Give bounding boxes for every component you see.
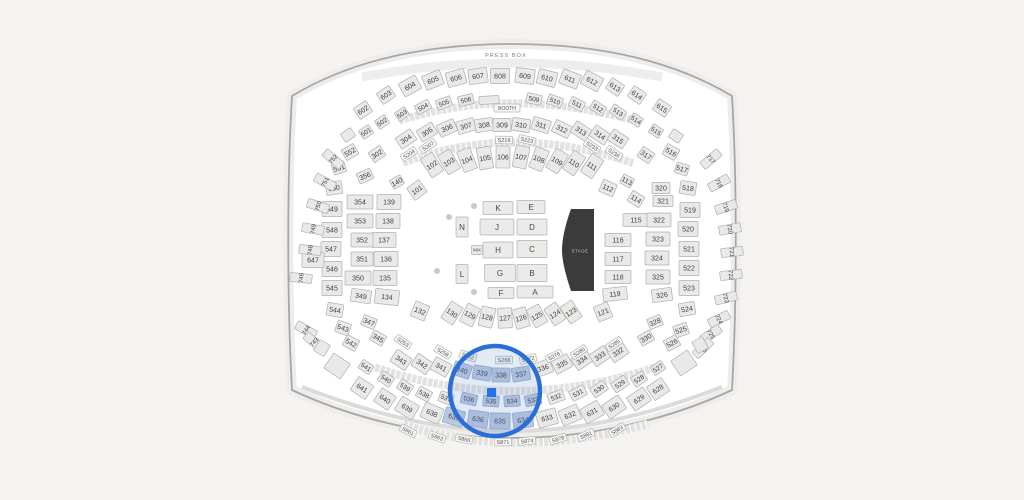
section-label: 351 <box>356 256 368 263</box>
section-label: 106 <box>497 154 509 161</box>
section-label: 522 <box>683 265 695 272</box>
section-label: 119 <box>609 291 621 299</box>
section-label: C <box>529 245 535 254</box>
section-label: 137 <box>378 237 390 244</box>
section-519[interactable]: 519 <box>680 203 700 218</box>
section-127[interactable]: 127 <box>498 308 513 329</box>
section-label: 519 <box>684 207 696 214</box>
section-label: 520 <box>682 226 694 233</box>
section-325[interactable]: 325 <box>646 270 670 284</box>
section-322[interactable]: 322 <box>647 213 671 227</box>
section-323[interactable]: 323 <box>646 232 670 246</box>
section-J[interactable]: J <box>480 219 514 235</box>
section-320[interactable]: 320 <box>652 183 670 194</box>
section-label: 350 <box>352 275 364 282</box>
section-354[interactable]: 354 <box>347 195 373 209</box>
section-label: 118 <box>612 274 623 281</box>
section-label: 325 <box>652 274 664 281</box>
section-label: S219 <box>498 138 511 144</box>
section-544[interactable]: 544 <box>326 302 344 318</box>
section-label: L <box>460 270 465 279</box>
section-label: K <box>495 204 501 213</box>
speaker-icon <box>434 268 440 274</box>
section-MIX[interactable]: MIX <box>472 246 483 255</box>
section-350[interactable]: 350 <box>345 271 371 285</box>
section-label: 722 <box>726 270 733 281</box>
section-label: 139 <box>383 199 395 206</box>
section-label: 748 <box>308 244 315 255</box>
section-label: 322 <box>653 217 665 224</box>
stadium-seat-map: PRESS BOX6026036046056066076086096106116… <box>0 0 1024 500</box>
section-label: 647 <box>307 257 319 264</box>
stage-label: STAGE <box>572 249 589 254</box>
section-label: 545 <box>326 285 338 292</box>
section-A[interactable]: A <box>517 286 553 298</box>
section-label: J <box>495 223 499 232</box>
section-324[interactable]: 324 <box>645 251 669 265</box>
section-label: 323 <box>652 236 664 243</box>
filler-section <box>479 95 499 104</box>
section-label: 353 <box>354 218 366 225</box>
section-D[interactable]: D <box>517 219 547 235</box>
section-label: 320 <box>655 185 667 192</box>
section-119[interactable]: 119 <box>602 286 627 301</box>
section-115[interactable]: 115 <box>623 214 649 227</box>
section-309[interactable]: 309 <box>493 119 511 132</box>
section-label: 117 <box>612 256 623 263</box>
section-label: 352 <box>356 237 368 244</box>
section-353[interactable]: 353 <box>347 214 373 228</box>
section-label: H <box>495 246 501 255</box>
section-S871[interactable]: S871 <box>494 438 511 446</box>
section-520[interactable]: 520 <box>678 222 698 237</box>
section-L[interactable]: L <box>456 265 468 284</box>
section-321[interactable]: 321 <box>653 196 673 207</box>
section-139[interactable]: 139 <box>377 195 401 210</box>
section-349[interactable]: 349 <box>350 288 372 304</box>
section-522[interactable]: 522 <box>679 261 699 276</box>
section-label: 523 <box>683 285 695 292</box>
section-326[interactable]: 326 <box>651 287 673 303</box>
section-booth[interactable]: BOOTH <box>494 104 520 112</box>
section-521[interactable]: 521 <box>679 242 699 257</box>
section-label: N <box>459 223 465 232</box>
section-608[interactable]: 608 <box>490 68 509 83</box>
section-308[interactable]: 308 <box>474 117 494 132</box>
section-116[interactable]: 116 <box>605 234 631 247</box>
section-label: 521 <box>683 246 695 253</box>
speaker-icon <box>446 214 452 220</box>
section-136[interactable]: 136 <box>374 252 398 267</box>
section-548[interactable]: 548 <box>322 223 342 238</box>
seat-map-page: PRESS BOX6026036046056066076086096106116… <box>0 0 1024 500</box>
press-box-label: PRESS BOX <box>485 53 527 59</box>
section-label: 127 <box>499 315 511 323</box>
section-label: D <box>529 223 535 232</box>
section-label: 548 <box>326 227 338 234</box>
section-label: 546 <box>326 266 338 273</box>
section-C[interactable]: C <box>517 241 547 258</box>
section-label: 136 <box>380 256 392 263</box>
section-607[interactable]: 607 <box>468 67 489 84</box>
speaker-icon <box>471 203 477 209</box>
section-138[interactable]: 138 <box>376 214 400 229</box>
section-117[interactable]: 117 <box>605 253 631 266</box>
section-label: 324 <box>651 255 663 262</box>
section-label: 608 <box>494 73 506 80</box>
section-shape <box>479 95 499 104</box>
section-label: E <box>528 203 533 212</box>
section-106[interactable]: 106 <box>496 146 510 168</box>
section-310[interactable]: 310 <box>511 117 531 133</box>
section-524[interactable]: 524 <box>678 301 696 317</box>
section-545[interactable]: 545 <box>322 281 342 296</box>
selected-seat-marker <box>487 388 496 397</box>
section-134[interactable]: 134 <box>374 288 399 305</box>
section-N[interactable]: N <box>456 217 468 237</box>
section-H[interactable]: H <box>483 242 513 258</box>
section-label: 135 <box>379 275 391 282</box>
section-label: 309 <box>496 122 508 129</box>
section-label: MIX <box>473 248 481 253</box>
section-118[interactable]: 118 <box>605 271 631 284</box>
section-label: 134 <box>381 294 393 302</box>
section-546[interactable]: 546 <box>322 262 342 277</box>
section-137[interactable]: 137 <box>372 233 396 248</box>
section-351[interactable]: 351 <box>351 252 373 266</box>
section-label: 354 <box>354 199 366 206</box>
section-label: B <box>529 269 534 278</box>
section-label: A <box>532 288 538 297</box>
section-label: S871 <box>497 440 510 446</box>
section-K[interactable]: K <box>483 202 513 215</box>
section-label: 115 <box>630 217 641 224</box>
section-G[interactable]: G <box>485 265 516 282</box>
section-label: 116 <box>612 237 623 244</box>
booth-label: BOOTH <box>498 106 516 112</box>
section-label: 138 <box>382 218 394 225</box>
section-B[interactable]: B <box>517 265 547 282</box>
section-label: 721 <box>727 247 734 258</box>
section-label: 321 <box>657 198 669 205</box>
section-E[interactable]: E <box>517 201 545 214</box>
section-518[interactable]: 518 <box>679 180 697 195</box>
section-135[interactable]: 135 <box>373 271 397 286</box>
speaker-icon <box>471 289 477 295</box>
section-S219[interactable]: S219 <box>495 136 512 144</box>
section-609[interactable]: 609 <box>515 67 536 84</box>
section-label: G <box>497 269 503 278</box>
section-label: F <box>499 289 504 298</box>
section-label: 547 <box>325 246 337 253</box>
section-352[interactable]: 352 <box>351 233 373 247</box>
section-523[interactable]: 523 <box>679 281 699 296</box>
section-F[interactable]: F <box>488 288 514 299</box>
section-label: 746 <box>299 272 306 283</box>
